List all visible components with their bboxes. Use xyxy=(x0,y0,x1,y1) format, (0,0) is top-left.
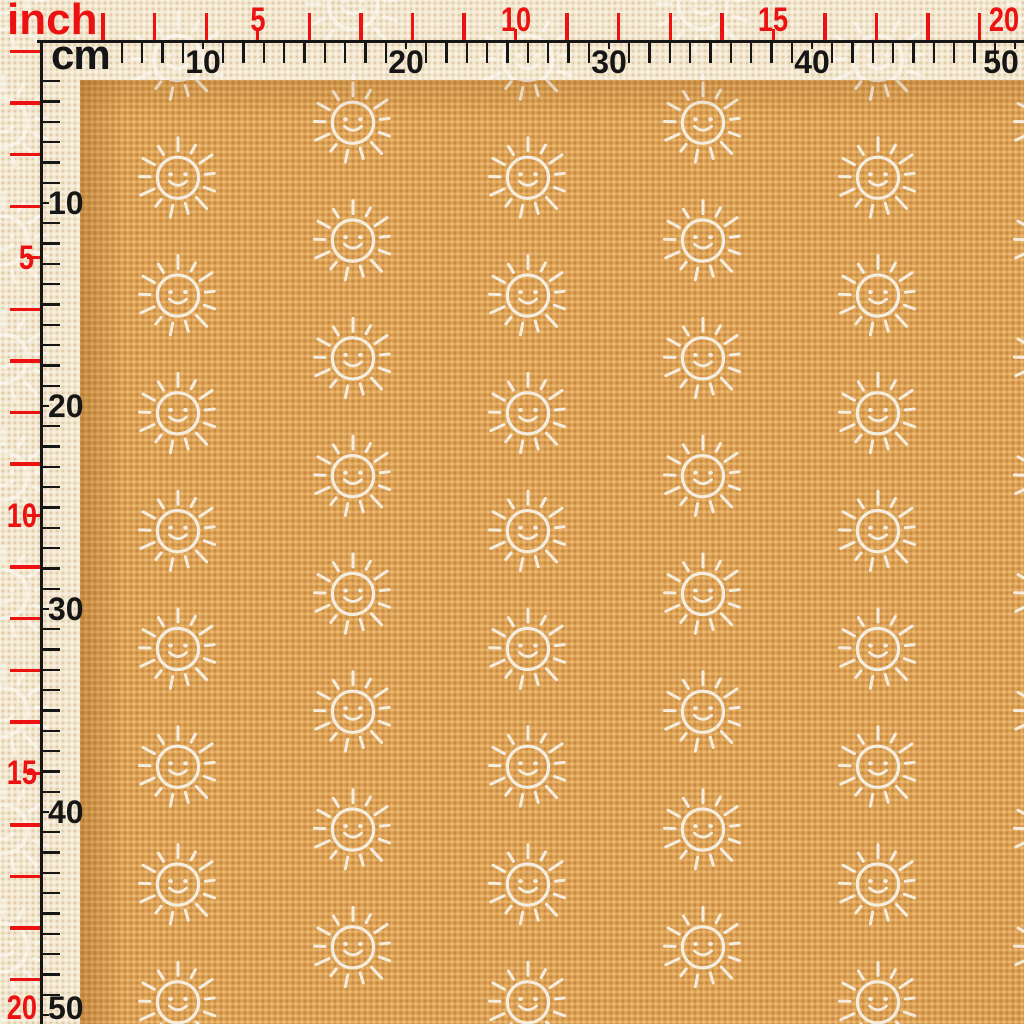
sun-motif xyxy=(315,554,390,633)
sun-motif xyxy=(665,201,740,280)
sun-motif xyxy=(140,373,215,452)
fabric-product-photo: inch cm 10203040505101520 10203040505101… xyxy=(0,0,1024,1024)
sun-motif xyxy=(0,547,46,641)
sun-motif xyxy=(490,80,565,99)
sun-motif xyxy=(840,138,915,217)
sun-motif xyxy=(140,727,215,806)
sun-motif xyxy=(1015,436,1024,515)
sun-motif xyxy=(840,80,915,99)
sun-motif xyxy=(315,201,390,280)
sun-motif xyxy=(840,727,915,806)
sun-motif xyxy=(140,962,215,1024)
sun-motif xyxy=(140,138,215,217)
sun-motif xyxy=(665,318,740,397)
sun-motif xyxy=(0,782,46,876)
sun-motif xyxy=(1015,790,1024,869)
sun-motif xyxy=(658,0,747,51)
sun-motif xyxy=(0,193,46,287)
sun-motif xyxy=(840,845,915,924)
sun-motif xyxy=(1008,0,1024,51)
sun-motif xyxy=(490,256,565,335)
sun-motif xyxy=(140,256,215,335)
sun-motif xyxy=(315,436,390,515)
sun-motif xyxy=(140,80,215,99)
sun-motif xyxy=(140,491,215,570)
sun-motif xyxy=(490,609,565,688)
sun-motif xyxy=(665,672,740,751)
sun-motif xyxy=(0,900,46,994)
sun-motif xyxy=(140,845,215,924)
sun-motif xyxy=(490,138,565,217)
sun-motif xyxy=(1015,83,1024,162)
sun-motif xyxy=(490,962,565,1024)
sun-motif xyxy=(308,0,397,51)
sun-motif xyxy=(1015,201,1024,280)
sun-motif xyxy=(665,436,740,515)
sun-motif xyxy=(0,311,46,405)
sun-motif xyxy=(1015,907,1024,986)
sun-motif xyxy=(0,1018,46,1024)
sun-motif xyxy=(315,790,390,869)
sun-motif xyxy=(315,318,390,397)
sun-motif xyxy=(315,907,390,986)
sun-motif xyxy=(490,727,565,806)
sun-motif xyxy=(0,429,46,523)
sun-motif xyxy=(665,790,740,869)
sun-motif xyxy=(0,665,46,759)
sun-motif xyxy=(665,83,740,162)
sun-pattern xyxy=(80,80,1024,1024)
fabric-swatch xyxy=(80,80,1024,1024)
sun-motif xyxy=(0,0,46,51)
sun-motif xyxy=(140,609,215,688)
sun-motif xyxy=(665,554,740,633)
sun-motif xyxy=(315,83,390,162)
sun-motif xyxy=(840,491,915,570)
sun-motif xyxy=(840,256,915,335)
sun-motif xyxy=(490,491,565,570)
sun-motif xyxy=(490,845,565,924)
sun-motif xyxy=(315,672,390,751)
sun-motif xyxy=(490,373,565,452)
sun-motif xyxy=(1015,554,1024,633)
sun-motif xyxy=(840,962,915,1024)
sun-motif xyxy=(0,76,46,170)
sun-motif xyxy=(1015,318,1024,397)
sun-motif xyxy=(665,907,740,986)
sun-motif xyxy=(1015,672,1024,751)
sun-motif xyxy=(840,609,915,688)
sun-motif xyxy=(840,373,915,452)
